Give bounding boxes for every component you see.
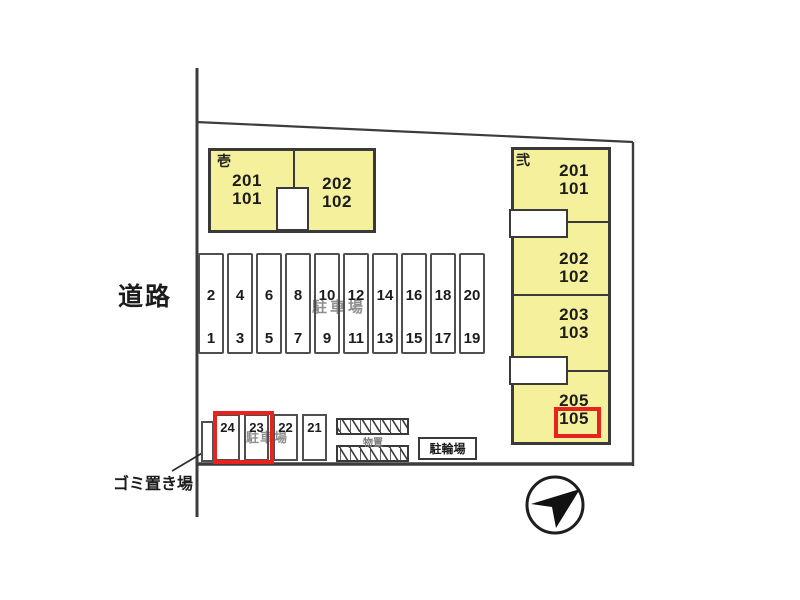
stall-number-top: 16 [403,288,425,303]
parking-stall-19-20: 2019 [459,253,485,354]
stall-number-top: 18 [432,288,454,303]
building-2-name: 弐 [516,150,530,170]
unit-upper-number: 202 [559,249,589,268]
unit-lower-number: 103 [559,323,589,342]
building-2-unit-3-label: 203 103 [544,306,604,342]
storage-label: 物置 [337,434,409,449]
stall-number-bottom: 1 [200,331,222,346]
parking-stall-11-12: 1211 [343,253,369,354]
stall-number-top: 14 [374,288,396,303]
parking-stall-21: 21 [302,414,327,461]
building-1-unit-2-label: 202 102 [307,175,367,211]
parking-stall-5-6: 65 [256,253,282,354]
unit-lower-number: 102 [322,192,352,211]
parking-stall-17-18: 1817 [430,253,456,354]
stall-number-bottom: 7 [287,331,309,346]
building-1-name: 壱 [217,151,231,171]
stall-number-bottom: 9 [316,331,338,346]
road-label: 道路 [105,277,185,313]
unit-lower-number: 101 [559,179,589,198]
stall-number-bottom: 19 [461,331,483,346]
stall-number-top: 10 [316,288,338,303]
garbage-label: ゴミ置き場 [92,470,214,494]
bicycle-parking-box: 駐輪場 [418,437,477,460]
building-2-entrance-lower [509,356,568,385]
building-1-unit-1-label: 201 101 [217,172,277,208]
unit-upper-number: 202 [322,174,352,193]
building-2-divider-1 [566,221,610,223]
bicycle-parking-label: 駐輪場 [429,440,465,457]
stall-number: 21 [304,420,325,435]
building-2-unit-1-label: 201 101 [544,162,604,198]
unit-upper-number: 201 [232,171,262,190]
parking-stall-13-14: 1413 [372,253,398,354]
stall-number-bottom: 17 [432,331,454,346]
stall-number-top: 6 [258,288,280,303]
stall-number-top: 4 [229,288,251,303]
building-2-divider-2 [513,294,609,296]
parking-stall-3-4: 43 [227,253,253,354]
stall-number-bottom: 11 [345,331,367,346]
parking-stall-1-2: 21 [198,253,224,354]
highlight-unit-105 [554,407,601,438]
stall-number-top: 8 [287,288,309,303]
building-1-unit-divider [293,150,295,189]
site-plan: 道路 壱 201 101 202 102 弐 201 101 202 102 2… [0,0,800,600]
stall-number-bottom: 13 [374,331,396,346]
parking-stall-9-10: 109 [314,253,340,354]
parking-stall-22: 22 [273,414,298,461]
garbage-pointer-line [172,452,204,471]
stall-number-top: 20 [461,288,483,303]
parking-stall-15-16: 1615 [401,253,427,354]
unit-upper-number: 201 [559,161,589,180]
stall-number-bottom: 5 [258,331,280,346]
unit-lower-number: 102 [559,267,589,286]
stall-number-top: 2 [200,288,222,303]
parking-stall-7-8: 87 [285,253,311,354]
unit-lower-number: 101 [232,189,262,208]
building-2-unit-2-label: 202 102 [544,250,604,286]
north-arrow-icon [527,477,583,533]
highlight-stalls-24-23 [213,411,274,464]
stall-number: 22 [275,420,296,435]
building-2-entrance-upper [509,209,568,238]
stall-number-top: 12 [345,288,367,303]
stall-number-bottom: 3 [229,331,251,346]
building-1-entrance [276,187,309,231]
building-2-divider-3 [566,370,610,372]
stall-number-bottom: 15 [403,331,425,346]
unit-upper-number: 203 [559,305,589,324]
